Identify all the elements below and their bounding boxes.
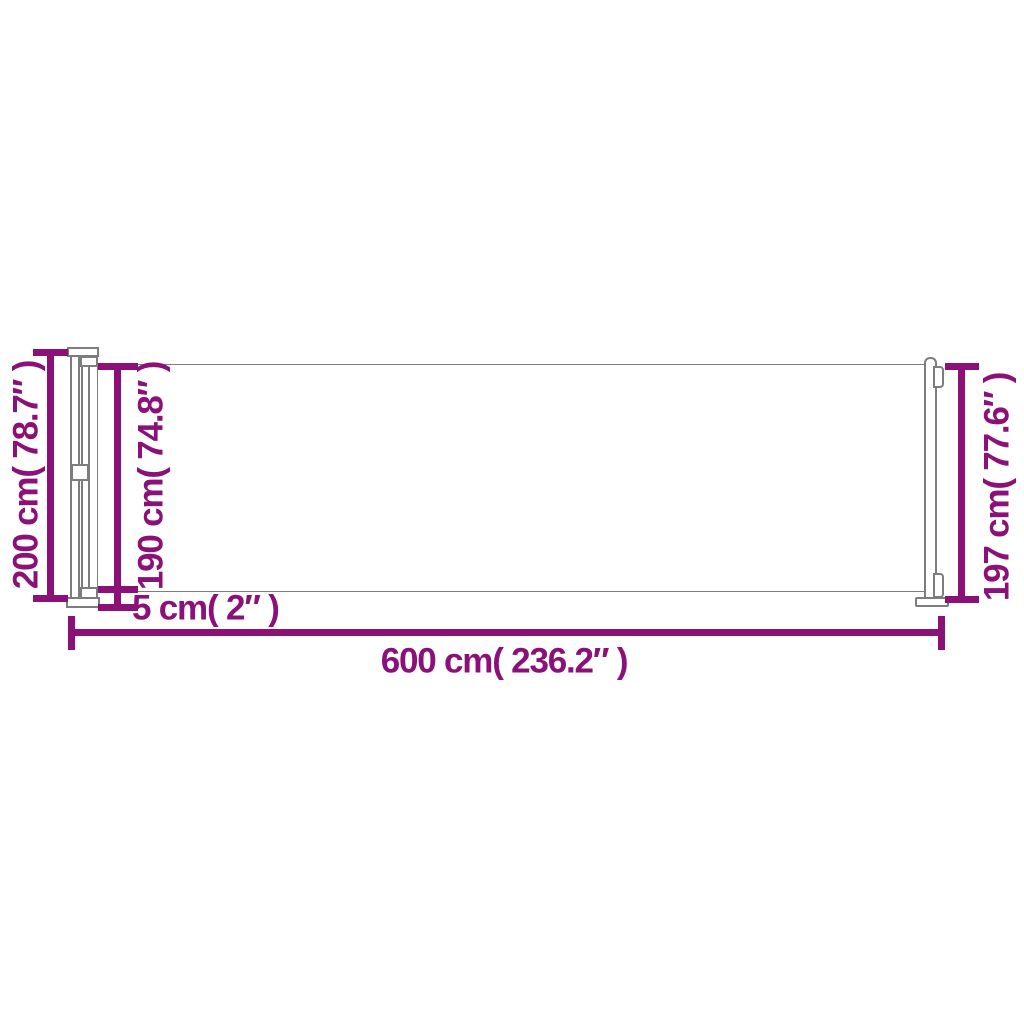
dim-label-pole-height-right: 197 cm( 77.6″ ) <box>980 373 1015 601</box>
dim-line <box>47 352 54 599</box>
dim-cap <box>945 596 979 603</box>
front-pole-bottom-bracket <box>933 573 944 598</box>
dim-label-fabric-height: 190 cm( 74.8″ ) <box>134 362 169 590</box>
dim-cap <box>938 616 945 650</box>
awning-dimension-diagram: 200 cm( 78.7″ ) 190 cm( 74.8″ ) 5 cm( 2″… <box>0 0 1024 1024</box>
cassette-latch <box>71 464 89 481</box>
awning-fabric-panel <box>97 364 925 592</box>
front-pole-top-bracket <box>933 366 944 388</box>
dim-label-total-height-left: 200 cm( 78.7″ ) <box>9 361 44 589</box>
dim-cap <box>33 595 68 602</box>
dim-label-ground-clearance: 5 cm( 2″ ) <box>132 591 279 626</box>
cassette-top-bracket <box>80 356 98 367</box>
front-pole-bar <box>924 357 937 601</box>
dim-label-total-width: 600 cm( 236.2″ ) <box>381 644 628 679</box>
cassette-foot-plate <box>66 597 100 608</box>
dim-line <box>114 366 121 590</box>
dim-line <box>958 366 965 600</box>
front-pole-foot-plate <box>915 597 949 607</box>
dim-line <box>71 629 942 636</box>
